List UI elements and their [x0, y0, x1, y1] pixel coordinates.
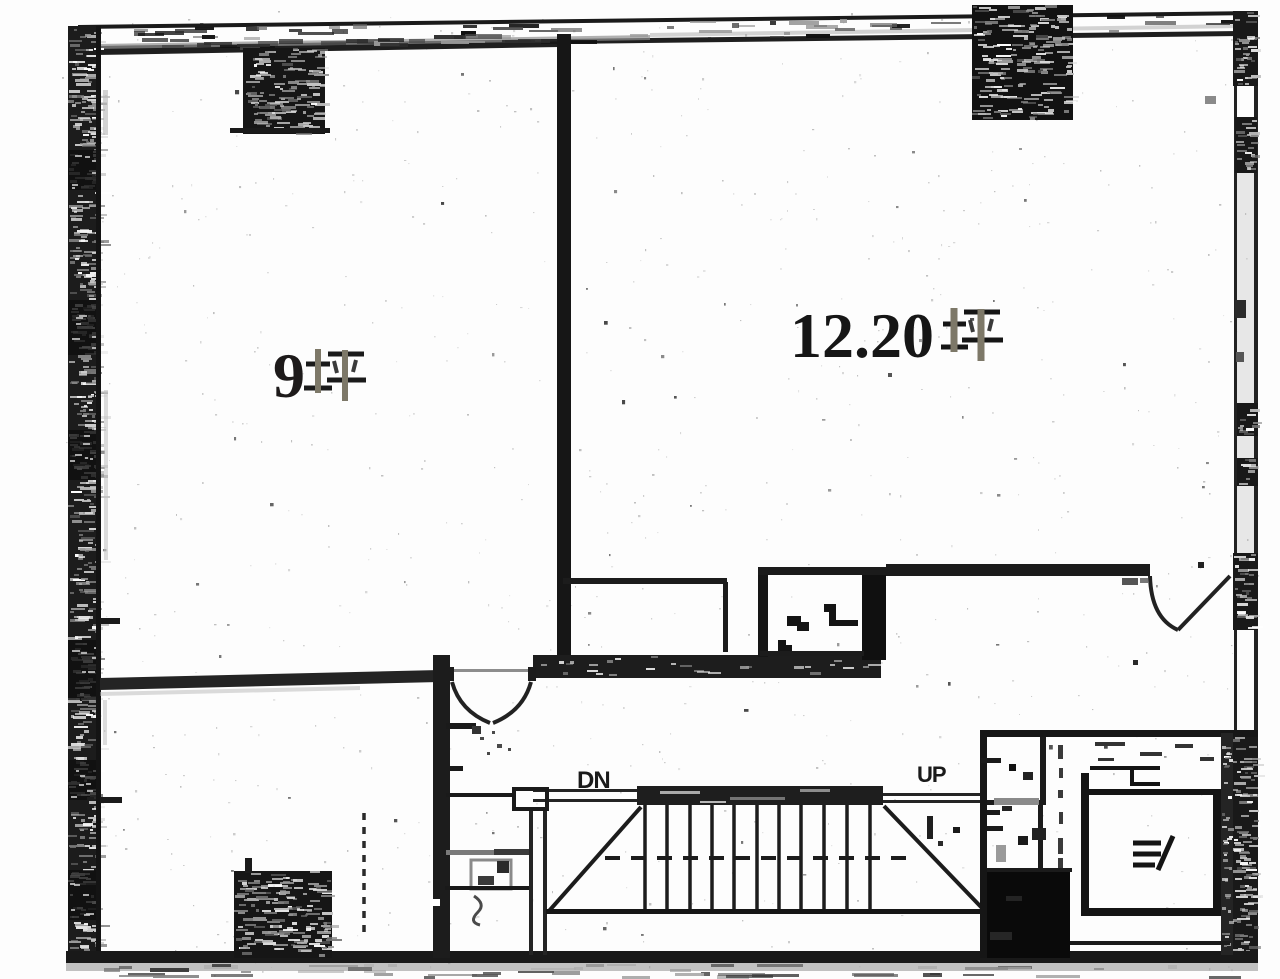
- svg-text:9: 9: [273, 340, 305, 411]
- svg-text:DN: DN: [577, 767, 610, 794]
- svg-text:12.20: 12.20: [790, 300, 934, 371]
- svg-text:UP: UP: [917, 762, 946, 787]
